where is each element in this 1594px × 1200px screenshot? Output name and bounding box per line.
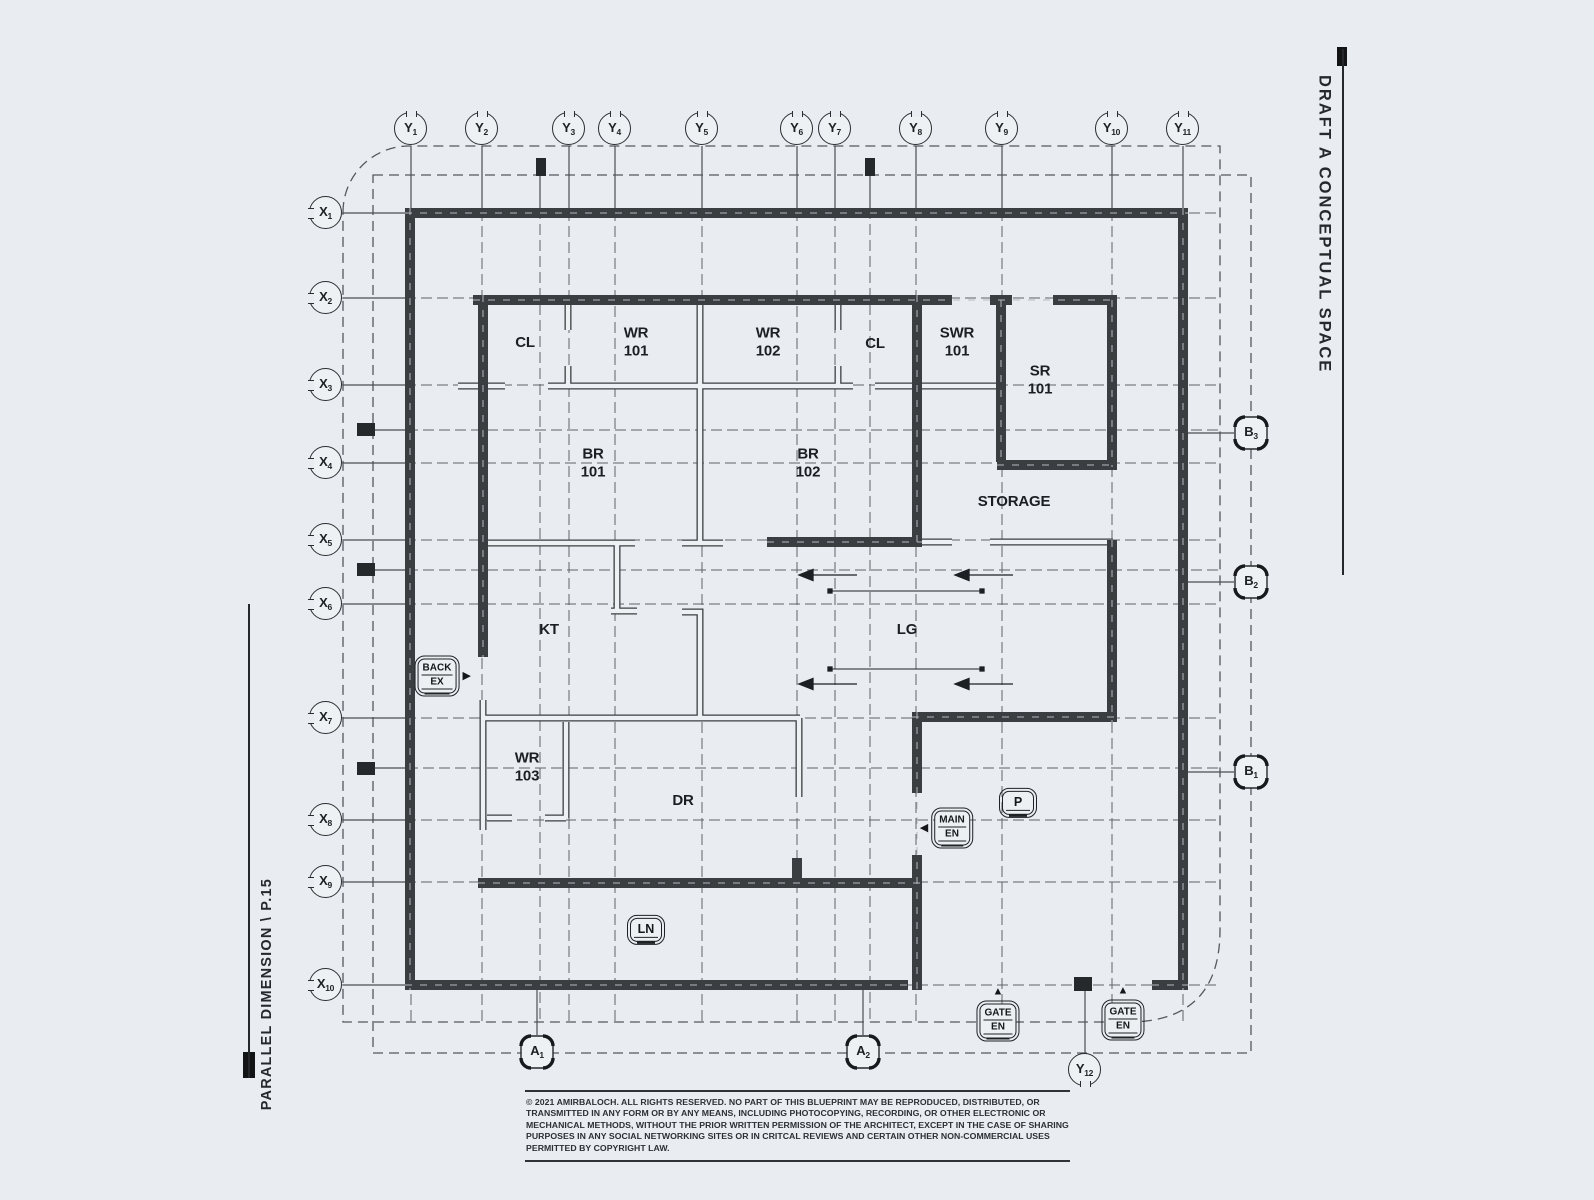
floor-plan-drawing: [0, 0, 1594, 1200]
copyright-note: © 2021 AMIRBALOCH. ALL RIGHTS RESERVED. …: [525, 1090, 1070, 1162]
left-title-rule: [248, 604, 250, 1078]
right-side-title: DRAFT A CONCEPTUAL SPACE: [1316, 75, 1333, 373]
blueprint-stage: Y1Y2Y3Y4Y5Y6Y7Y8Y9Y10Y11X1X2X3X4X5X6X7X8…: [0, 0, 1594, 1200]
flow-arrows: [799, 570, 1013, 690]
partition-walls: [458, 303, 1113, 830]
marker-connector-lines: [343, 146, 1234, 1053]
left-side-title: PARALLEL DIMENSION \ P.15: [260, 878, 275, 1110]
right-title-rule: [1342, 49, 1344, 575]
grid-lines: [341, 146, 1220, 1022]
